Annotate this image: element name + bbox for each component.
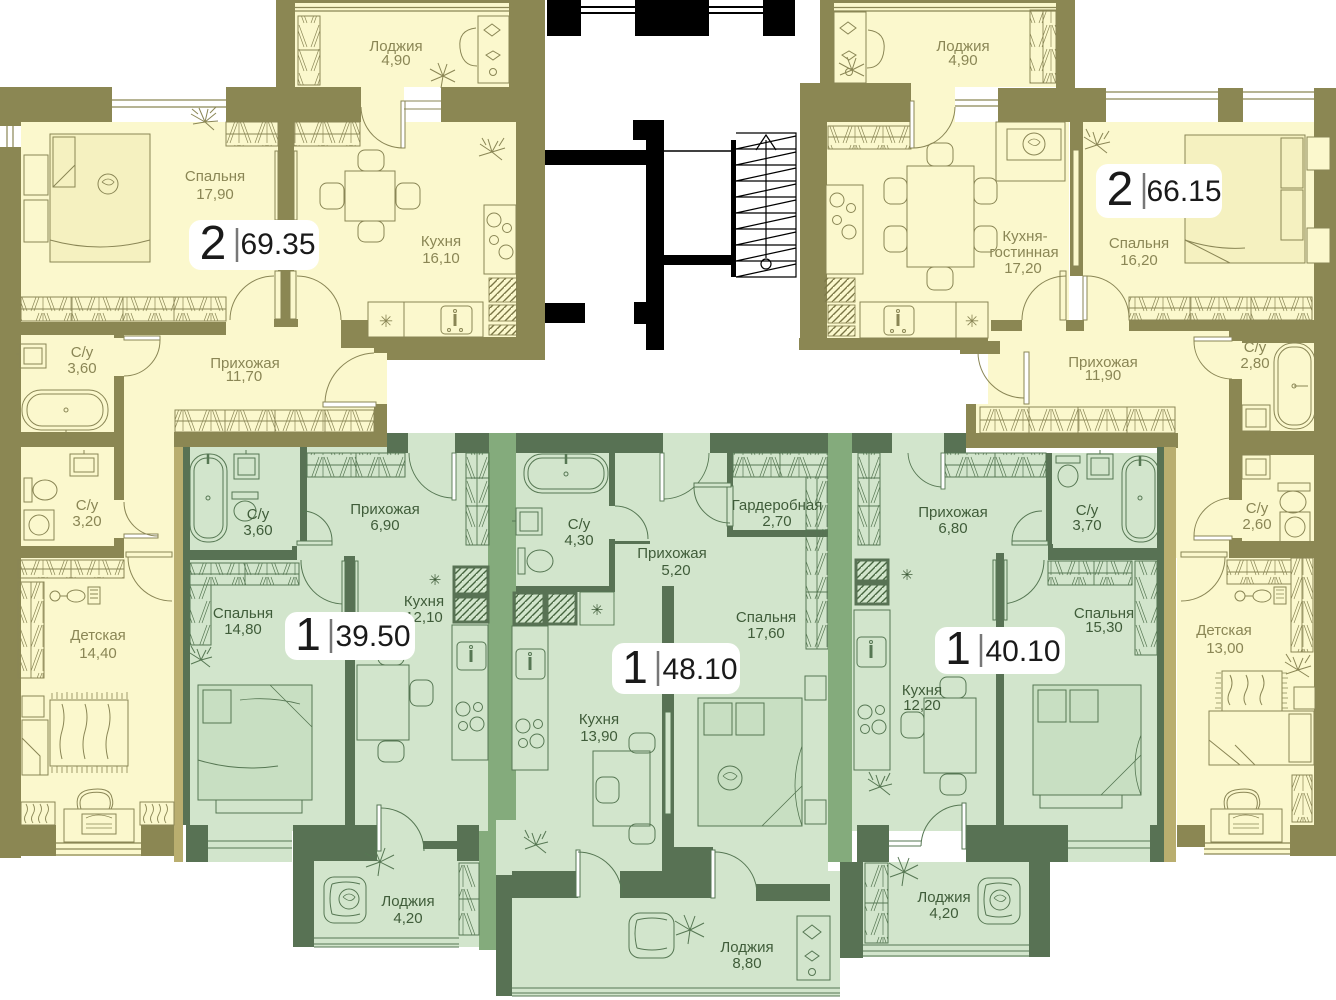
svg-text:С/у: С/у xyxy=(247,506,270,523)
svg-text:2: 2 xyxy=(1107,163,1134,216)
svg-text:✳: ✳ xyxy=(591,602,604,619)
svg-text:8,80: 8,80 xyxy=(732,955,761,972)
svg-text:14,80: 14,80 xyxy=(224,621,262,638)
svg-text:Прихожая: Прихожая xyxy=(918,504,988,521)
svg-text:С/у: С/у xyxy=(568,516,591,533)
svg-text:66.15: 66.15 xyxy=(1146,175,1221,208)
svg-text:11,70: 11,70 xyxy=(226,368,262,385)
svg-text:13,00: 13,00 xyxy=(1206,640,1244,657)
svg-text:15,30: 15,30 xyxy=(1085,619,1123,636)
svg-text:Спальня: Спальня xyxy=(736,609,796,626)
svg-text:✳: ✳ xyxy=(965,312,979,331)
svg-text:Детская: Детская xyxy=(1196,622,1252,639)
svg-text:1: 1 xyxy=(622,641,648,693)
svg-text:Прихожая: Прихожая xyxy=(350,501,420,518)
svg-text:Лоджия: Лоджия xyxy=(917,889,970,906)
svg-text:6,80: 6,80 xyxy=(938,520,967,537)
svg-text:Кухня-: Кухня- xyxy=(1002,228,1047,245)
svg-text:✳: ✳ xyxy=(379,312,393,331)
svg-text:3,20: 3,20 xyxy=(72,513,101,530)
svg-text:2,70: 2,70 xyxy=(762,513,791,530)
svg-text:гостинная: гостинная xyxy=(989,244,1058,261)
svg-text:11,90: 11,90 xyxy=(1085,367,1121,384)
svg-text:Прихожая: Прихожая xyxy=(637,545,707,562)
svg-text:2,80: 2,80 xyxy=(1240,355,1269,372)
svg-text:16,10: 16,10 xyxy=(422,250,460,267)
svg-text:1: 1 xyxy=(945,622,971,674)
svg-text:4,90: 4,90 xyxy=(948,52,977,69)
svg-text:17,60: 17,60 xyxy=(747,625,785,642)
svg-text:3,60: 3,60 xyxy=(243,522,272,539)
svg-text:12,20: 12,20 xyxy=(903,697,941,714)
svg-text:6,90: 6,90 xyxy=(370,517,399,534)
svg-text:4,90: 4,90 xyxy=(381,52,410,69)
svg-text:С/у: С/у xyxy=(76,497,99,514)
svg-text:Лоджия: Лоджия xyxy=(720,939,773,956)
svg-text:4,30: 4,30 xyxy=(564,532,593,549)
svg-text:Гардеробная: Гардеробная xyxy=(732,497,823,514)
svg-text:С/у: С/у xyxy=(71,344,94,361)
svg-text:3,70: 3,70 xyxy=(1072,517,1101,534)
svg-text:Кухня: Кухня xyxy=(579,711,619,728)
svg-text:17,90: 17,90 xyxy=(196,186,234,203)
svg-text:✳: ✳ xyxy=(429,572,442,589)
svg-text:48.10: 48.10 xyxy=(662,653,737,686)
svg-text:14,40: 14,40 xyxy=(79,645,117,662)
svg-text:1: 1 xyxy=(295,608,321,660)
svg-text:16,20: 16,20 xyxy=(1120,252,1158,269)
svg-text:2: 2 xyxy=(200,217,227,270)
svg-text:17,20: 17,20 xyxy=(1004,260,1042,277)
svg-text:Детская: Детская xyxy=(70,627,126,644)
svg-text:Кухня: Кухня xyxy=(404,593,444,610)
svg-text:Спальня: Спальня xyxy=(213,605,273,622)
svg-text:69.35: 69.35 xyxy=(240,228,315,261)
svg-text:5,20: 5,20 xyxy=(661,562,690,579)
svg-text:4,20: 4,20 xyxy=(393,910,422,927)
svg-text:3,60: 3,60 xyxy=(67,360,96,377)
svg-text:13,90: 13,90 xyxy=(580,728,618,745)
svg-text:40.10: 40.10 xyxy=(985,635,1060,668)
svg-text:2,60: 2,60 xyxy=(1242,516,1271,533)
svg-text:Лоджия: Лоджия xyxy=(381,893,434,910)
svg-text:✳: ✳ xyxy=(901,567,914,584)
svg-text:39.50: 39.50 xyxy=(335,620,410,653)
svg-text:Кухня: Кухня xyxy=(421,233,461,250)
svg-text:С/у: С/у xyxy=(1246,500,1269,517)
svg-text:С/у: С/у xyxy=(1244,339,1267,356)
svg-text:Спальня: Спальня xyxy=(185,168,245,185)
svg-text:4,20: 4,20 xyxy=(929,905,958,922)
svg-text:Спальня: Спальня xyxy=(1109,235,1169,252)
